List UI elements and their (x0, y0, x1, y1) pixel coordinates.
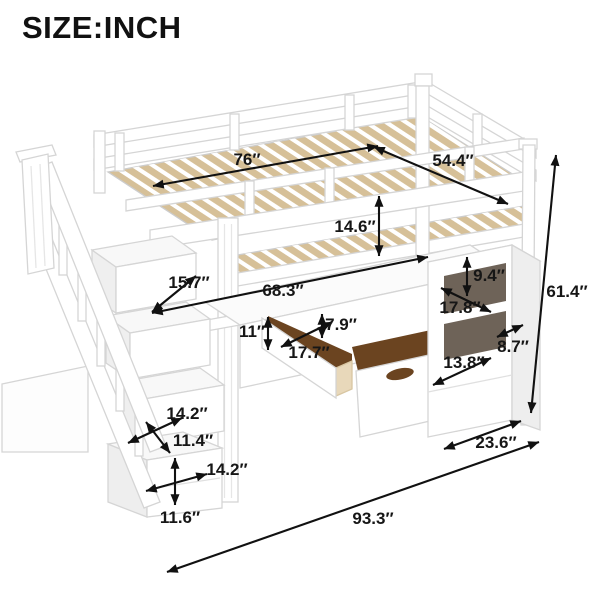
product-dimension-diagram: SIZE:INCH (0, 0, 600, 600)
stair-newel-post (22, 154, 54, 274)
shelf-tower-side (512, 245, 540, 430)
stair-storage-box-front (147, 448, 222, 517)
loft-bed-illustration (0, 0, 600, 600)
page-title: SIZE:INCH (22, 10, 182, 46)
